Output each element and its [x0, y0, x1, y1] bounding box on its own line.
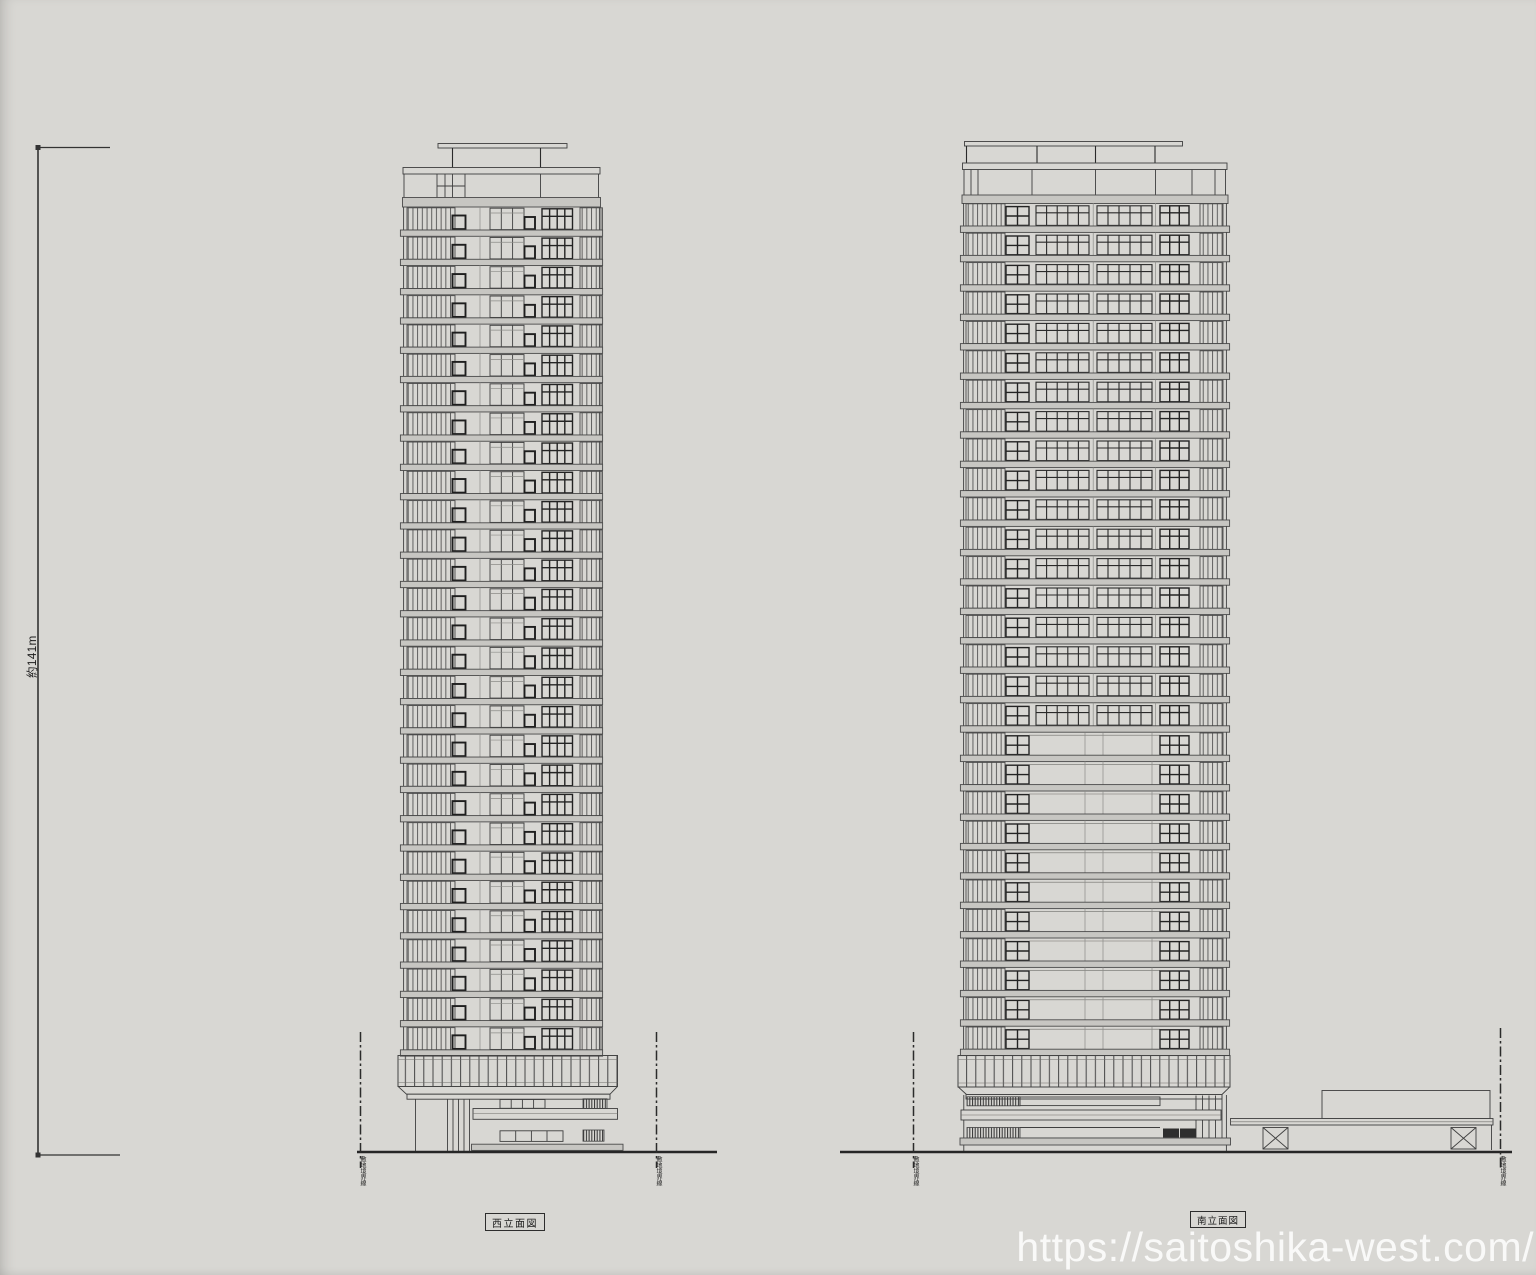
south-annex	[1231, 1091, 1494, 1151]
height-dimension-label: 約141m	[24, 635, 40, 678]
south-boundary-label-right: 敷地境界線	[1496, 1156, 1505, 1186]
south-boundary-label-left: 敷地境界線	[909, 1156, 918, 1186]
south-floors-lower	[960, 732, 1229, 1055]
west-elevation-title-text: 西立面図	[492, 1215, 538, 1230]
south-base	[960, 1095, 1231, 1151]
height-dimension	[36, 145, 121, 1158]
west-floors	[400, 207, 602, 1056]
west-base	[416, 1099, 624, 1152]
watermark-url: https://saitoshika-west.com/	[1016, 1224, 1534, 1271]
west-elevation-building	[357, 144, 717, 1169]
west-boundary-label-right: 敷地境界線	[652, 1156, 661, 1186]
west-elevation-title: 西立面図	[485, 1213, 545, 1231]
south-floors-upper	[960, 203, 1229, 732]
elevation-drawing-canvas	[0, 0, 1536, 1275]
west-boundary-label-left: 敷地境界線	[356, 1156, 365, 1186]
south-elevation-building	[840, 142, 1512, 1171]
south-roof-structure	[962, 142, 1228, 204]
south-podium	[958, 1056, 1230, 1100]
west-roof-structure	[403, 144, 601, 208]
drawing-sheet: 約141m 敷地境界線 敷地境界線 敷地境界線 敷地境界線 西立面図 南立面図 …	[0, 0, 1536, 1275]
west-podium	[398, 1056, 618, 1100]
